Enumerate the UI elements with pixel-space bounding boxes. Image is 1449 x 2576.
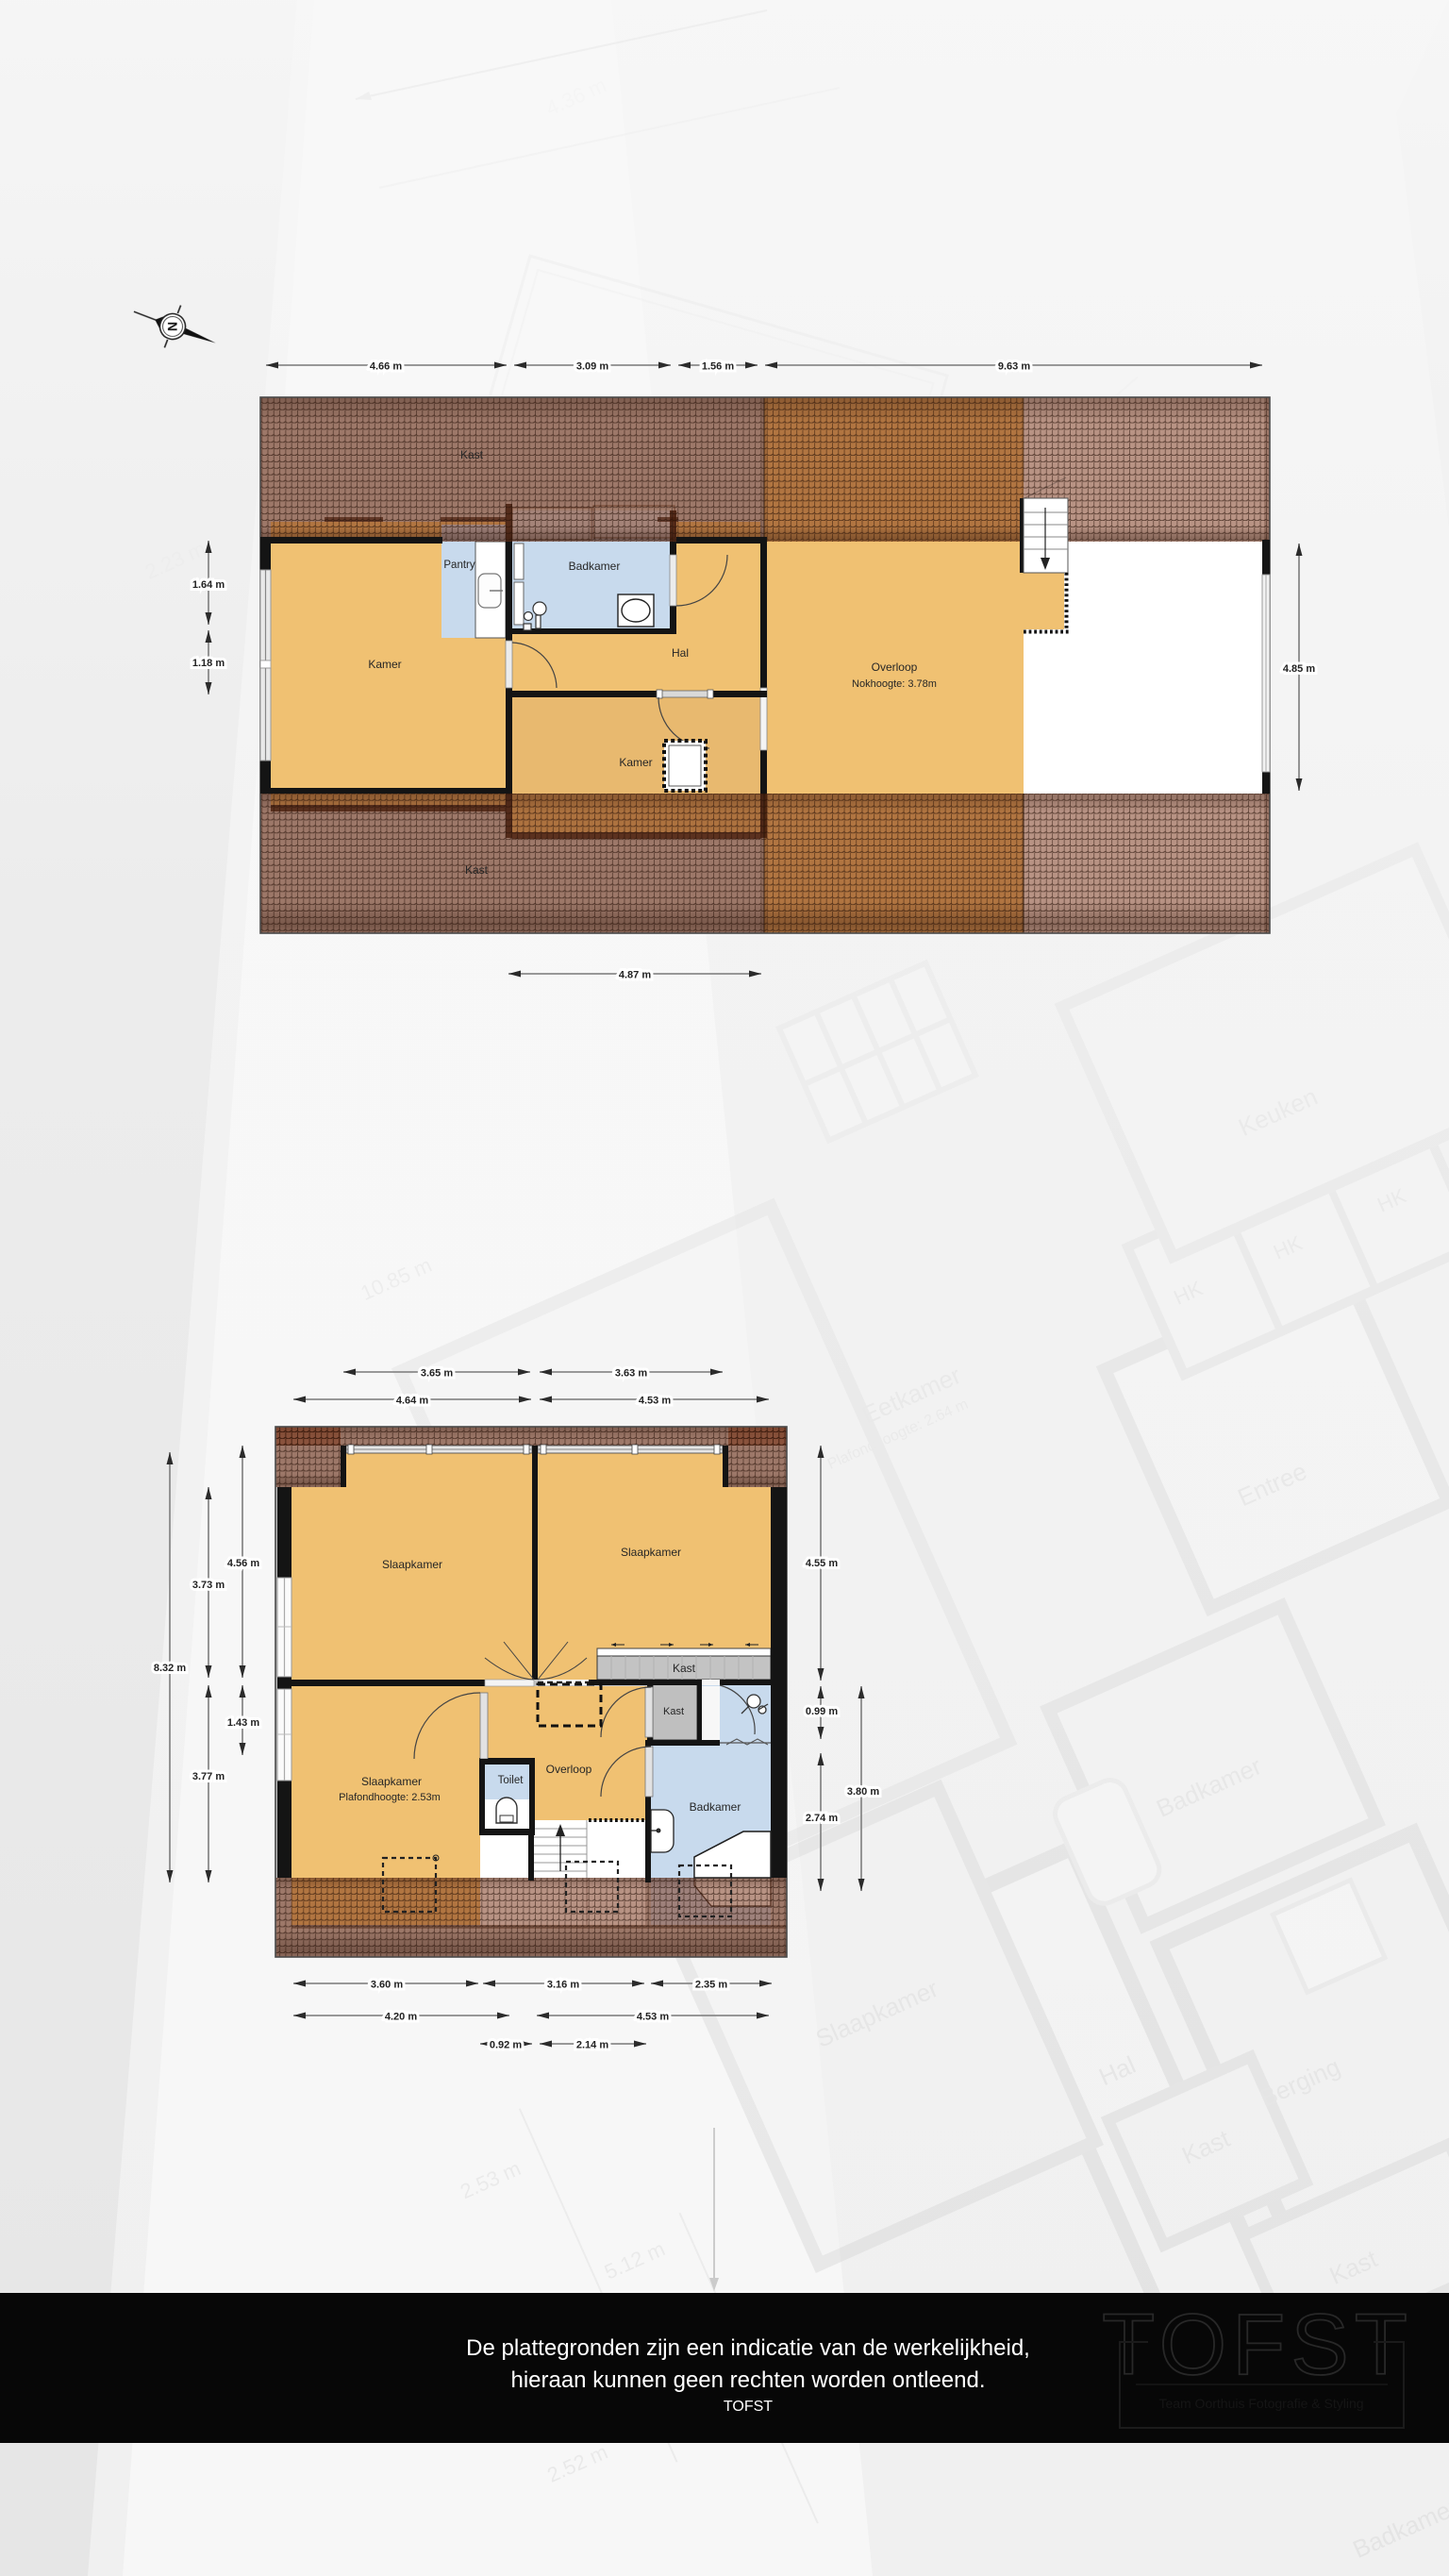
svg-text:Slaapkamer: Slaapkamer — [382, 1558, 442, 1571]
svg-text:4.66 m: 4.66 m — [370, 361, 402, 373]
svg-text:4.55 m: 4.55 m — [806, 1558, 838, 1569]
svg-text:TOFST: TOFST — [724, 2399, 773, 2415]
svg-text:Nokhoogte: 3.78m: Nokhoogte: 3.78m — [852, 678, 937, 690]
svg-text:Kast: Kast — [465, 863, 489, 877]
svg-text:Overloop: Overloop — [546, 1763, 592, 1776]
svg-text:Kamer: Kamer — [619, 756, 652, 769]
svg-text:3.63 m: 3.63 m — [615, 1368, 647, 1380]
svg-text:3.65 m: 3.65 m — [421, 1368, 453, 1380]
svg-text:4.53 m: 4.53 m — [637, 2012, 669, 2023]
svg-text:1.18 m: 1.18 m — [192, 658, 225, 669]
svg-text:3.60 m: 3.60 m — [371, 1980, 403, 1991]
svg-text:3.80 m: 3.80 m — [847, 1786, 879, 1798]
svg-text:Kamer: Kamer — [368, 658, 401, 671]
svg-text:4.20 m: 4.20 m — [385, 2012, 417, 2023]
svg-text:hieraan kunnen geen rechten wo: hieraan kunnen geen rechten worden ontle… — [510, 2367, 985, 2393]
svg-text:4.87 m: 4.87 m — [619, 970, 651, 981]
svg-text:Slaapkamer: Slaapkamer — [621, 1546, 681, 1559]
svg-text:0.99 m: 0.99 m — [806, 1706, 838, 1717]
svg-text:Badkamer: Badkamer — [690, 1800, 741, 1814]
svg-text:8.32 m: 8.32 m — [154, 1663, 186, 1674]
svg-text:Kast: Kast — [460, 448, 484, 461]
svg-text:3.16 m: 3.16 m — [547, 1980, 579, 1991]
svg-text:2.35 m: 2.35 m — [695, 1980, 727, 1991]
svg-text:4.53 m: 4.53 m — [639, 1396, 671, 1407]
svg-text:4.64 m: 4.64 m — [396, 1396, 428, 1407]
svg-text:Pantry: Pantry — [443, 560, 475, 571]
svg-text:2.74 m: 2.74 m — [806, 1813, 838, 1824]
svg-text:3.73 m: 3.73 m — [192, 1580, 225, 1591]
svg-text:4.56 m: 4.56 m — [227, 1558, 259, 1569]
svg-text:N: N — [165, 322, 180, 331]
svg-text:2.14 m: 2.14 m — [576, 2040, 608, 2051]
svg-text:9.63 m: 9.63 m — [998, 361, 1030, 373]
svg-text:Toilet: Toilet — [498, 1775, 525, 1786]
svg-text:1.43 m: 1.43 m — [227, 1717, 259, 1729]
svg-text:Overloop: Overloop — [872, 661, 918, 674]
svg-text:Plafondhoogte: 2.53m: Plafondhoogte: 2.53m — [339, 1792, 441, 1803]
svg-text:Hal: Hal — [672, 646, 689, 660]
svg-text:0.92 m: 0.92 m — [490, 2040, 522, 2051]
svg-text:Kast: Kast — [663, 1706, 684, 1717]
svg-text:Team Oorthuis Fotografie & Sty: Team Oorthuis Fotografie & Styling — [1158, 2396, 1363, 2411]
svg-text:4.85 m: 4.85 m — [1283, 663, 1315, 675]
svg-text:1.56 m: 1.56 m — [702, 361, 734, 373]
svg-text:De plattegronden zijn een indi: De plattegronden zijn een indicatie van … — [466, 2335, 1030, 2361]
svg-text:Kast: Kast — [673, 1662, 696, 1675]
svg-text:Badkamer: Badkamer — [569, 560, 621, 573]
svg-text:3.09 m: 3.09 m — [576, 361, 608, 373]
svg-text:TOFST: TOFST — [1102, 2297, 1413, 2393]
svg-text:1.64 m: 1.64 m — [192, 579, 225, 591]
svg-text:Slaapkamer: Slaapkamer — [361, 1775, 422, 1788]
svg-text:3.77 m: 3.77 m — [192, 1771, 225, 1782]
